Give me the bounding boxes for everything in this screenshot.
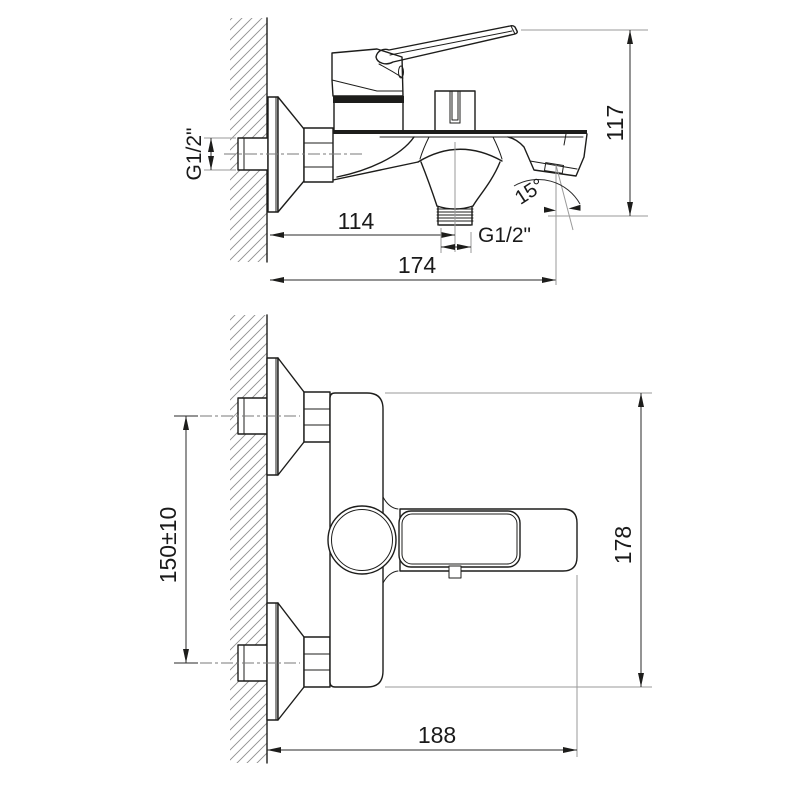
technical-drawing-canvas: G1/2" 114 G1/2" 174 15° — [0, 0, 800, 800]
dim-178-label: 178 — [610, 526, 636, 564]
wall-section-bottom — [230, 315, 267, 763]
dim-wall-to-spout-outlet: 174 — [270, 252, 556, 280]
front-view: 150±10 178 188 — [155, 315, 652, 763]
shower-thread-label: G1/2" — [478, 224, 531, 247]
handle-assembly-front — [328, 506, 577, 578]
inlet-thread-label: G1/2" — [183, 128, 206, 181]
drawing-page: G1/2" 114 G1/2" 174 15° — [0, 0, 800, 800]
tub-spout — [508, 134, 587, 176]
spout-tab — [449, 566, 461, 578]
dim-174-label: 174 — [398, 252, 437, 278]
diverter-knob — [435, 91, 475, 131]
lever-handle-side — [376, 26, 517, 78]
angle-arrow-right — [569, 205, 581, 211]
lever-knob-outer — [328, 506, 396, 574]
faucet-body-side — [333, 130, 587, 209]
angle-arrow-left — [544, 207, 556, 213]
lever-face-outer — [399, 511, 520, 567]
upper-escutcheon — [267, 358, 330, 475]
dim-150-label: 150±10 — [155, 507, 181, 584]
side-view: G1/2" 114 G1/2" 174 15° — [183, 18, 648, 285]
dim-114-label: 114 — [338, 208, 375, 234]
dim-117-label: 117 — [602, 105, 628, 142]
lower-escutcheon — [267, 603, 330, 720]
dim-188-label: 188 — [418, 722, 456, 748]
cartridge-housing — [332, 49, 404, 130]
dim-shower-outlet-thread: G1/2" — [441, 224, 531, 253]
